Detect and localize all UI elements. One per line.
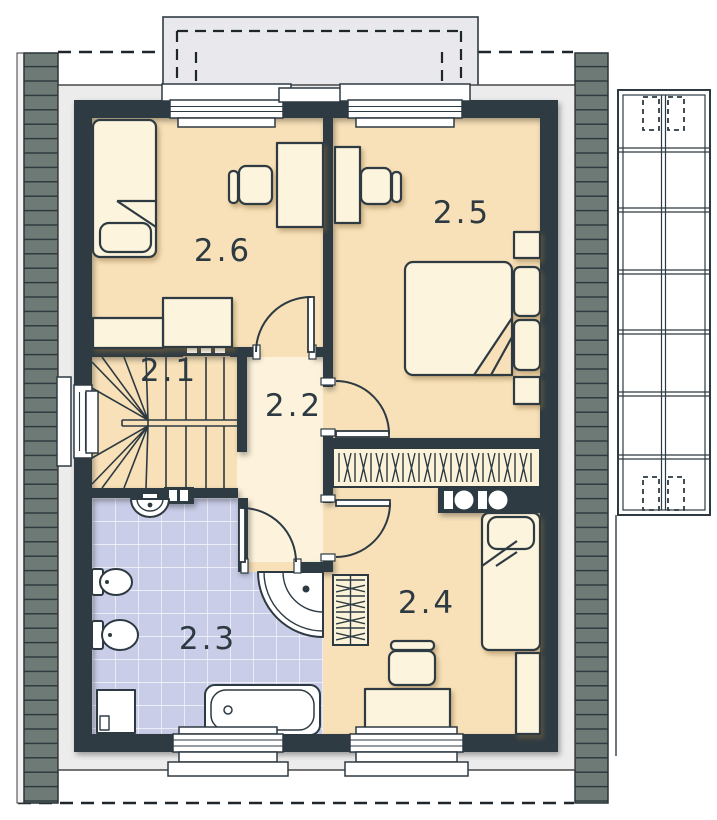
closet-strip-2-4	[333, 448, 540, 487]
room-label-2-6: 2.6	[194, 233, 252, 269]
desk-2-6	[277, 143, 323, 227]
dormer-roof	[163, 17, 478, 93]
dresser-2-6	[163, 298, 232, 347]
office-chair-2-6	[229, 166, 272, 204]
room-label-2-2: 2.2	[265, 388, 323, 424]
window-left-stairs	[57, 377, 98, 466]
bidet	[92, 569, 132, 595]
room-label-2-5: 2.5	[433, 195, 491, 231]
window-bottom-2-3	[168, 727, 288, 776]
single-bed-2-6	[93, 120, 156, 257]
floor-plan: 2.1 2.2 2.3 2.4 2.5 2.6	[0, 0, 717, 820]
washing-machine	[97, 690, 135, 733]
wardrobe-2-4	[333, 575, 368, 645]
cabinet-2-4	[516, 653, 540, 734]
chimney-block-2-4	[438, 487, 540, 513]
office-chair-2-4	[389, 641, 435, 685]
room-label-2-1: 2.1	[140, 353, 198, 389]
room-label-2-3: 2.3	[179, 621, 237, 657]
nightstand-2-5-a	[514, 232, 540, 258]
floor-plan-drawing: 2.1 2.2 2.3 2.4 2.5 2.6	[0, 0, 717, 820]
office-chair-2-5	[361, 168, 401, 204]
window-top-2-6	[162, 84, 291, 127]
roof-strip-left	[17, 53, 58, 803]
toilet	[92, 620, 138, 650]
cabinet-2-6	[93, 318, 163, 348]
window-top-2-5	[340, 84, 470, 127]
roof-strip-right	[575, 53, 616, 803]
nightstand-2-5-b	[514, 377, 540, 404]
single-bed-2-4	[482, 513, 540, 650]
window-bottom-2-4	[345, 727, 468, 776]
desk-2-5	[335, 147, 360, 223]
pergola-grid	[618, 90, 710, 515]
room-label-2-4: 2.4	[398, 585, 456, 621]
